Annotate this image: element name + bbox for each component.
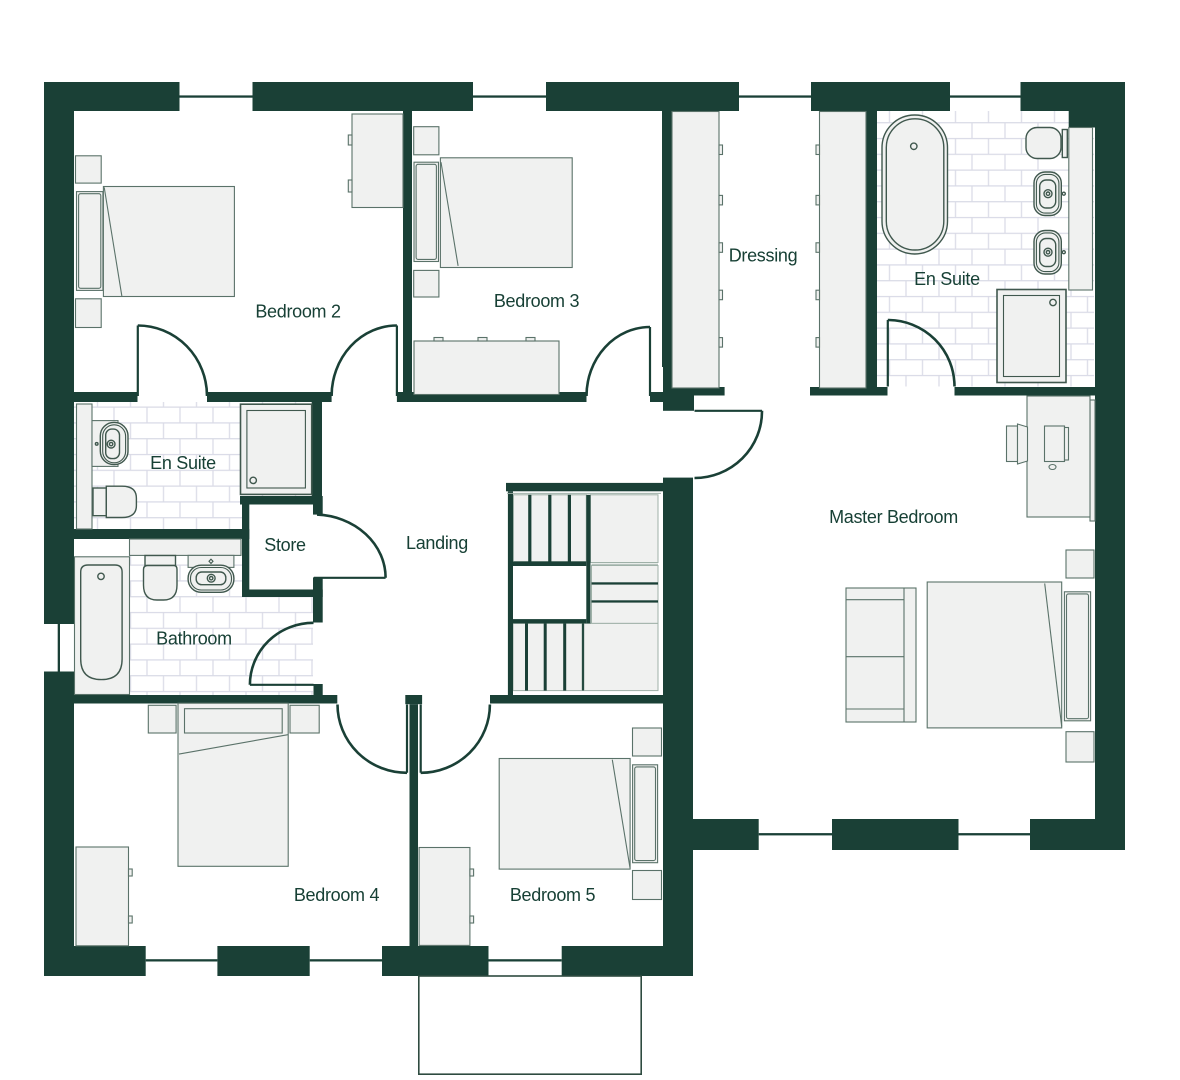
svg-text:Bedroom 4: Bedroom 4 <box>294 885 380 905</box>
svg-text:Bedroom 3: Bedroom 3 <box>494 291 580 311</box>
svg-text:Bedroom 5: Bedroom 5 <box>510 885 596 905</box>
svg-text:En Suite: En Suite <box>914 269 980 289</box>
svg-text:Bedroom 2: Bedroom 2 <box>255 302 341 322</box>
svg-text:Dressing: Dressing <box>729 246 798 266</box>
svg-text:Landing: Landing <box>406 533 468 553</box>
svg-text:Store: Store <box>264 535 306 555</box>
svg-text:Master Bedroom: Master Bedroom <box>829 507 958 527</box>
svg-text:En Suite: En Suite <box>150 453 216 473</box>
svg-text:Bathroom: Bathroom <box>156 629 232 649</box>
